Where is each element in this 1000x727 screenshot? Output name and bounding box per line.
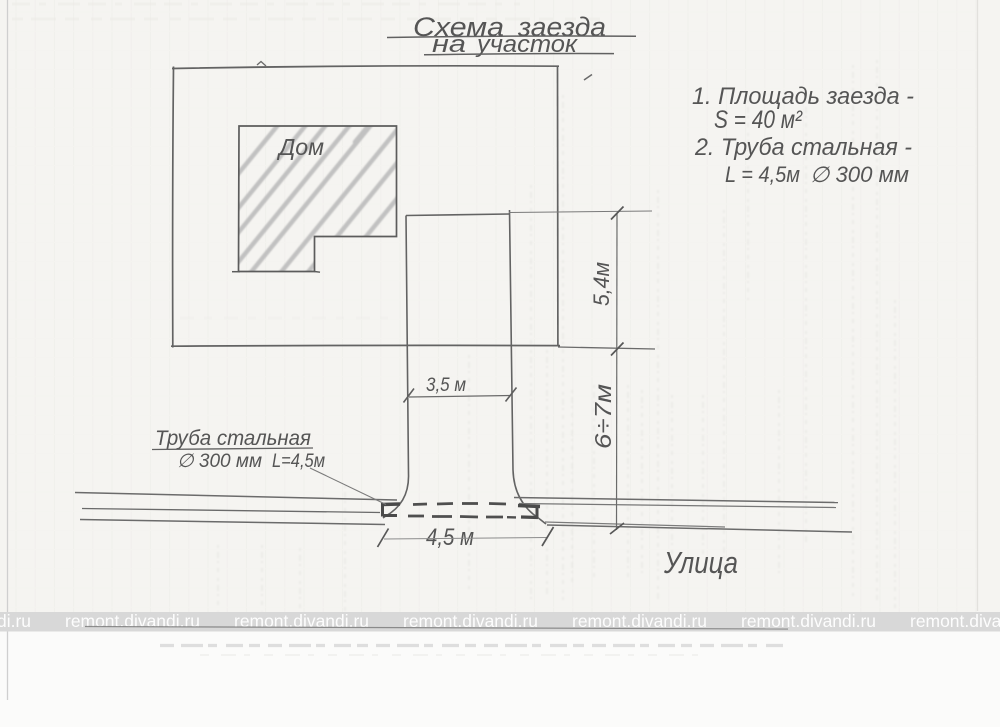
svg-text:Дом: Дом: [276, 134, 324, 160]
svg-text:L = 4,5м: L = 4,5м: [725, 162, 800, 187]
svg-text:5,4м: 5,4м: [589, 262, 614, 306]
svg-text:Труба стальная: Труба стальная: [155, 427, 311, 450]
svg-text:remont.divandi.ru: remont.divandi.ru: [65, 611, 200, 631]
svg-text:∅ 300 мм: ∅ 300 мм: [177, 451, 262, 472]
svg-text:6÷7м: 6÷7м: [590, 384, 616, 449]
svg-text:S = 40 м²: S = 40 м²: [714, 106, 803, 134]
svg-text:4,5 м: 4,5 м: [426, 524, 474, 551]
svg-text:∅ 300 мм: ∅ 300 мм: [810, 162, 909, 187]
svg-text:2. Труба стальная -: 2. Труба стальная -: [694, 134, 912, 161]
svg-text:3,5 м: 3,5 м: [426, 375, 466, 396]
svg-text:remont.divandi.ru: remont.divandi.ru: [910, 611, 1000, 631]
svg-text:remont.divandi.ru: remont.divandi.ru: [0, 611, 31, 631]
svg-text:L=4,5м: L=4,5м: [272, 451, 325, 472]
svg-text:Улица: Улица: [663, 545, 738, 580]
svg-text:remont.divandi.ru: remont.divandi.ru: [741, 611, 876, 631]
